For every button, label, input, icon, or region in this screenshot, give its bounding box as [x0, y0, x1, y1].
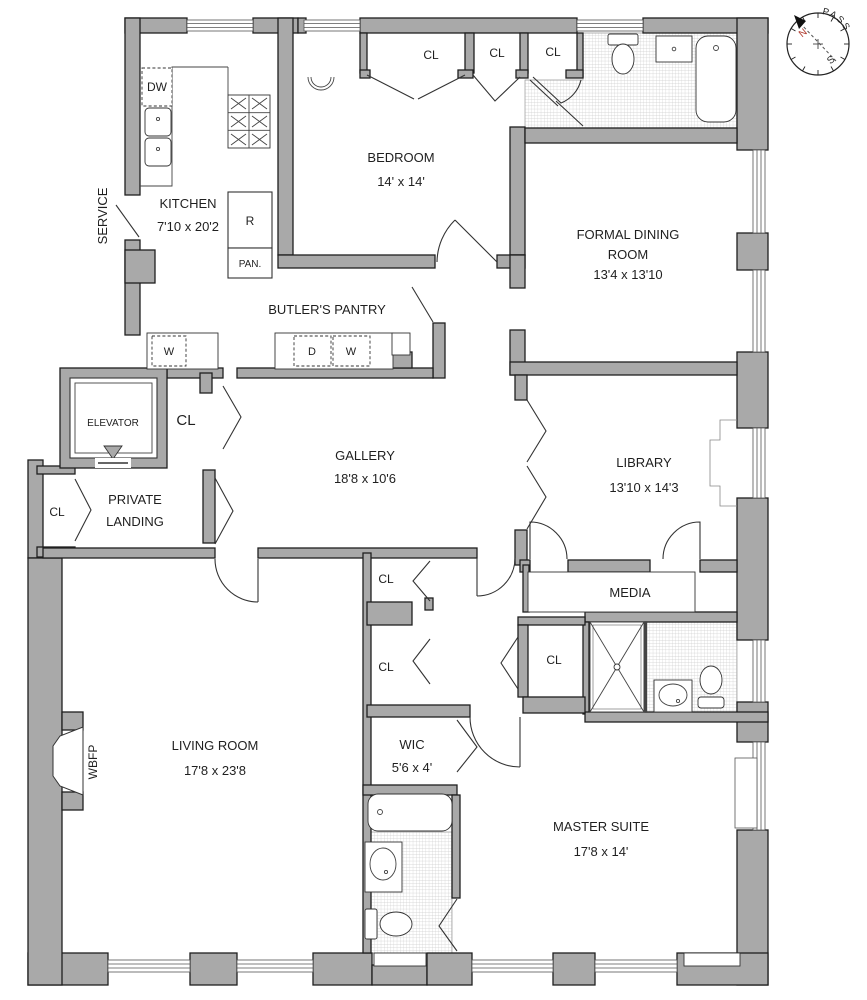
living-room-door — [215, 559, 258, 602]
wall-niche — [374, 953, 426, 966]
kitchen-label: KITCHEN — [159, 196, 216, 211]
kitchen-fixtures — [140, 67, 272, 278]
closet-label: CL — [546, 653, 562, 667]
window — [187, 20, 253, 31]
window — [577, 20, 643, 31]
library-window-seat — [710, 420, 737, 506]
toilet-tank — [608, 34, 638, 45]
master-suite-door — [470, 717, 520, 767]
dryer-label: D — [308, 346, 316, 358]
kitchen-sink — [145, 138, 171, 166]
kitchen-sink — [145, 108, 171, 136]
closet-door — [501, 637, 518, 689]
private-landing-label-1: PRIVATE — [108, 492, 162, 507]
window — [753, 150, 765, 233]
bedroom-door — [437, 220, 497, 262]
shelf — [392, 333, 410, 355]
service-label: SERVICE — [95, 187, 110, 244]
bedroom-arch — [308, 77, 334, 90]
dining-door — [412, 287, 433, 322]
library-double-door — [527, 400, 546, 529]
closet-door — [413, 561, 430, 601]
bedroom-label: BEDROOM — [367, 150, 434, 165]
dining-label-1: FORMAL DINING — [577, 227, 680, 242]
window — [472, 960, 553, 972]
window — [595, 960, 677, 972]
shower-drain — [614, 664, 620, 670]
closet-label: CL — [545, 45, 561, 59]
floor-plan-svg: SERVICE KITCHEN 7'10 x 20'2 DW R PAN. BE… — [0, 0, 867, 1000]
window — [753, 270, 765, 352]
bathroom-sink — [656, 36, 692, 62]
wic-door — [457, 720, 477, 772]
floor-plan-page: SERVICE KITCHEN 7'10 x 20'2 DW R PAN. BE… — [0, 0, 867, 1000]
window — [753, 640, 765, 702]
closet-door — [75, 479, 91, 541]
living-room-label: LIVING ROOM — [172, 738, 259, 753]
toilet-icon — [700, 666, 722, 694]
window — [108, 960, 190, 972]
toilet-tank — [365, 909, 377, 939]
wbfp-label: WBFP — [86, 745, 100, 780]
master-suite-dims: 17'8 x 14' — [574, 844, 629, 859]
window — [237, 960, 313, 972]
dishwasher-label: DW — [147, 80, 168, 94]
wall-niche — [684, 953, 740, 966]
dining-label-2: ROOM — [608, 247, 648, 262]
closet-door — [413, 639, 430, 684]
private-landing-label-2: LANDING — [106, 514, 164, 529]
living-room-dims: 17'8 x 23'8 — [184, 763, 246, 778]
closet-label: CL — [49, 505, 65, 519]
media-label: MEDIA — [609, 585, 651, 600]
closet-door — [473, 75, 520, 101]
washer-label: W — [346, 346, 357, 358]
closet-label: CL — [423, 48, 439, 62]
service-door — [116, 205, 139, 237]
media-doors — [530, 522, 700, 559]
closet-label: CL — [378, 660, 394, 674]
hall-door — [477, 558, 515, 596]
refrigerator-label: R — [246, 214, 255, 228]
closet-label: CL — [489, 46, 505, 60]
toilet-base — [698, 697, 724, 708]
washer-label: W — [164, 346, 175, 358]
kitchen-dims: 7'10 x 20'2 — [157, 219, 219, 234]
closet-double-door — [367, 75, 465, 99]
shower-wall — [644, 622, 647, 712]
toilet-icon — [380, 912, 412, 936]
window — [304, 20, 360, 31]
butlers-pantry-label: BUTLER'S PANTRY — [268, 302, 386, 317]
closet-label: CL — [378, 572, 394, 586]
pantry-label: PAN. — [239, 259, 262, 270]
library-label: LIBRARY — [616, 455, 672, 470]
wic-dims: 5'6 x 4' — [392, 760, 432, 775]
bathtub-icon — [368, 794, 452, 831]
wic-label: WIC — [399, 737, 424, 752]
closet-label: CL — [176, 412, 195, 429]
landing-door — [215, 478, 233, 544]
bedroom-dims: 14' x 14' — [377, 174, 425, 189]
gallery-label: GALLERY — [335, 448, 395, 463]
bathtub-icon — [696, 36, 736, 122]
bathroom-sink — [654, 680, 692, 712]
master-suite-label: MASTER SUITE — [553, 819, 649, 834]
laundry-counters — [147, 333, 410, 369]
master-window-sill — [735, 758, 757, 828]
gallery-dims: 18'8 x 10'6 — [334, 471, 396, 486]
closet-door — [223, 386, 241, 449]
window — [753, 428, 765, 498]
toilet-icon — [612, 44, 634, 74]
dining-dims: 13'4 x 13'10 — [593, 267, 662, 282]
library-dims: 13'10 x 14'3 — [609, 480, 678, 495]
elevator-label: ELEVATOR — [87, 418, 139, 429]
